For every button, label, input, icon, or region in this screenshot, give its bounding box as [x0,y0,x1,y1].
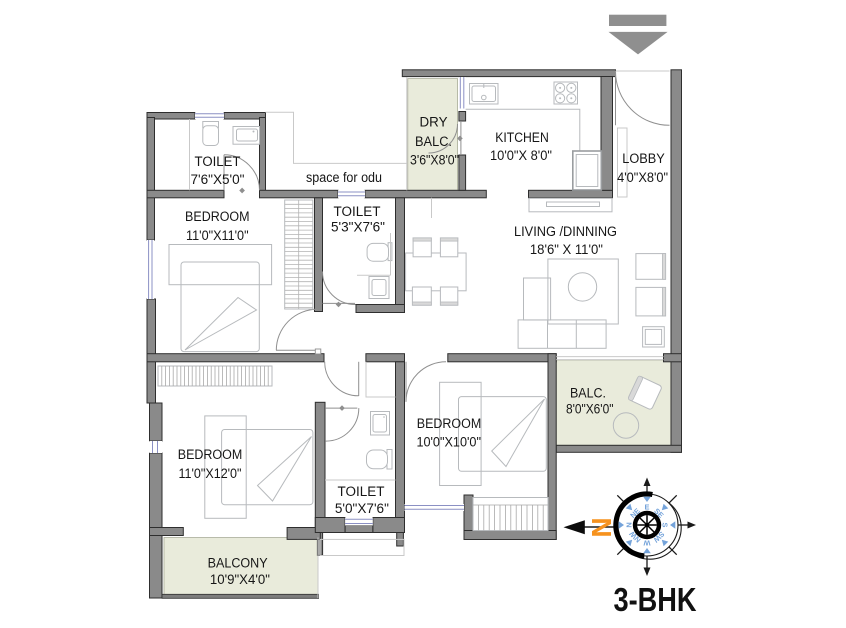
svg-text:5'0"X7'6": 5'0"X7'6" [335,501,389,517]
svg-text:TOILET: TOILET [334,204,381,220]
svg-text:N: N [586,517,617,537]
svg-text:BALC.: BALC. [570,386,606,402]
svg-text:S: S [660,523,669,528]
svg-text:7'6"X5'0": 7'6"X5'0" [191,172,245,188]
svg-text:TOILET: TOILET [338,484,385,500]
svg-text:BEDROOM: BEDROOM [417,416,482,432]
svg-text:10'9"X4'0": 10'9"X4'0" [210,572,270,588]
svg-text:11'0"X11'0": 11'0"X11'0" [186,228,249,244]
svg-text:space for odu: space for odu [306,170,382,186]
svg-text:5'3"X7'6": 5'3"X7'6" [331,220,385,236]
svg-text:10'0"X 8'0": 10'0"X 8'0" [490,148,552,164]
svg-text:8'0"X6'0": 8'0"X6'0" [566,402,614,418]
svg-text:3-BHK: 3-BHK [614,581,697,618]
svg-text:TOILET: TOILET [195,154,241,170]
svg-text:10'0"X10'0": 10'0"X10'0" [416,435,481,451]
svg-text:11'0"X12'0": 11'0"X12'0" [179,466,242,482]
svg-text:W: W [643,538,650,547]
svg-text:4'0"X8'0": 4'0"X8'0" [617,170,668,186]
svg-text:LOBBY: LOBBY [622,151,665,167]
svg-text:BALCONY: BALCONY [208,556,268,572]
svg-text:N: N [625,522,634,527]
svg-text:BALC.: BALC. [415,134,452,150]
svg-text:BEDROOM: BEDROOM [178,447,243,463]
svg-text:BEDROOM: BEDROOM [185,209,250,225]
svg-text:18'6" X 11'0": 18'6" X 11'0" [530,242,603,258]
svg-text:LIVING /DINNING: LIVING /DINNING [514,224,617,240]
svg-text:KITCHEN: KITCHEN [495,130,549,146]
svg-text:3'6"X8'0": 3'6"X8'0" [410,153,459,169]
svg-text:E: E [645,503,650,512]
svg-text:DRY: DRY [420,115,449,131]
